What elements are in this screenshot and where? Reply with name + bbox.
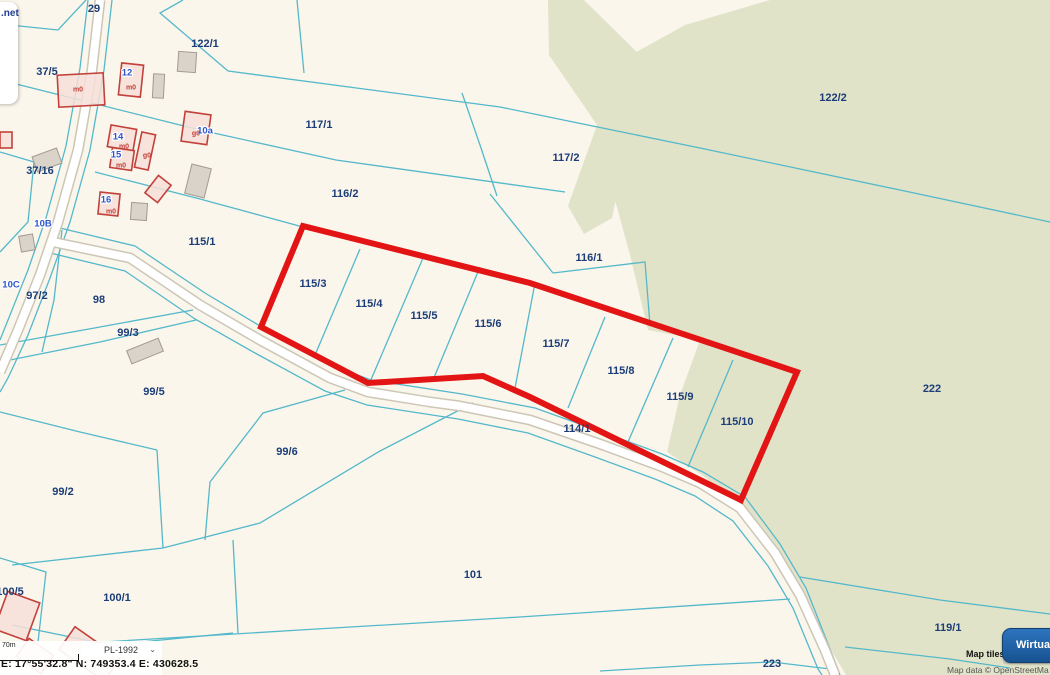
parcel-number-label: 115/8 xyxy=(608,365,635,377)
map-viewport[interactable]: 29122/1122/237/5117/1117/2116/2116/1115/… xyxy=(0,0,1050,675)
building-type-label: m0 xyxy=(106,209,116,216)
address-number-label: 10B xyxy=(34,219,52,230)
building-type-label: m0 xyxy=(73,87,83,94)
parcel-number-label: 117/2 xyxy=(553,152,580,164)
building-type-label: m0 xyxy=(126,85,136,92)
parcel-number-label: 37/16 xyxy=(26,165,54,177)
wirtualny-button[interactable]: Wirtualn xyxy=(1002,628,1050,663)
watermark-net-label: .net xyxy=(1,8,19,19)
parcel-number-label: 115/3 xyxy=(300,278,327,290)
map-canvas[interactable]: 29122/1122/237/5117/1117/2116/2116/1115/… xyxy=(0,0,1050,675)
parcel-number-label: 115/6 xyxy=(475,318,502,330)
parcel-number-label: 101 xyxy=(464,569,482,581)
building-gray xyxy=(130,202,147,220)
status-bar: 70m PL-1992 ⌄ E: 17°55'32.8" N: 749353.4… xyxy=(0,641,162,675)
parcel-number-label: 115/4 xyxy=(356,298,384,310)
parcel-number-label: 29 xyxy=(88,3,100,15)
building-gray xyxy=(152,74,164,99)
parcel-number-label: 115/9 xyxy=(667,391,694,403)
parcel-number-label: 99/5 xyxy=(143,386,164,398)
parcel-number-label: 37/5 xyxy=(36,66,57,78)
parcel-number-label: 115/5 xyxy=(411,310,438,322)
watermark-card: .net M tr xyxy=(0,2,18,104)
parcel-number-label: 115/7 xyxy=(543,338,570,350)
parcel-number-label: 98 xyxy=(93,294,105,306)
building-type-label: g0 xyxy=(143,153,151,160)
scale-label: 70m xyxy=(2,642,16,649)
address-number-label: 10C xyxy=(2,280,20,291)
parcel-number-label: 99/6 xyxy=(276,446,297,458)
parcel-number-label: 115/1 xyxy=(189,236,216,248)
parcel-number-label: 97/2 xyxy=(26,290,47,302)
parcel-number-label: 223 xyxy=(763,658,781,670)
parcel-number-label: 116/2 xyxy=(332,188,359,200)
address-number-label: 14 xyxy=(113,132,124,143)
parcel-number-label: 99/3 xyxy=(117,327,138,339)
building-type-label: m0 xyxy=(119,144,129,151)
map-tiles-attribution: Map tiles xyxy=(966,649,1005,659)
parcel-number-label: 222 xyxy=(923,383,941,395)
parcel-number-label: 115/10 xyxy=(720,416,753,428)
building-type-label: m0 xyxy=(116,163,126,170)
building-outlined xyxy=(0,132,12,148)
coordinates-readout: E: 17°55'32.8" N: 749353.4 E: 430628.5 xyxy=(1,658,198,670)
parcel-number-label: 116/1 xyxy=(576,252,603,264)
building-type-label: g0 xyxy=(192,131,200,138)
address-number-label: 12 xyxy=(122,68,133,79)
parcel-number-label: 114/1 xyxy=(564,423,591,435)
parcel-number-label: 100/5 xyxy=(0,586,24,598)
parcel-number-label: 100/1 xyxy=(103,592,131,604)
building-gray xyxy=(19,234,36,252)
crs-dropdown[interactable]: PL-1992 ⌄ xyxy=(82,643,160,657)
parcel-number-label: 119/1 xyxy=(935,622,962,634)
parcel-number-label: 122/1 xyxy=(191,38,219,50)
building-gray xyxy=(177,51,196,72)
address-number-label: 15 xyxy=(111,150,122,161)
chevron-down-icon: ⌄ xyxy=(149,643,156,657)
parcel-number-label: 122/2 xyxy=(819,92,847,104)
parcel-number-label: 117/1 xyxy=(306,119,333,131)
map-data-attribution: Map data © OpenStreetMa xyxy=(947,665,1049,675)
address-number-label: 16 xyxy=(101,195,112,206)
parcel-number-label: 99/2 xyxy=(52,486,73,498)
crs-value: PL-1992 xyxy=(104,645,138,655)
